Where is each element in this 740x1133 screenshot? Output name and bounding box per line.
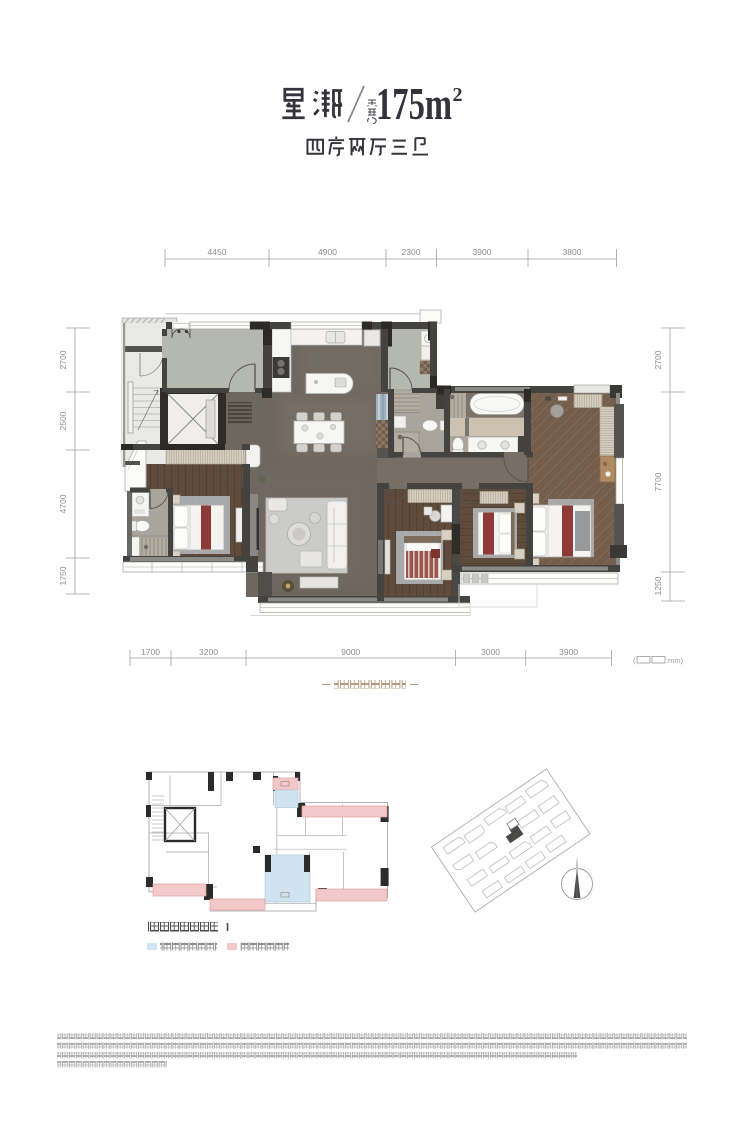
svg-text:1750: 1750 — [58, 566, 68, 585]
svg-text:2500: 2500 — [58, 411, 68, 430]
svg-text:3000: 3000 — [481, 647, 500, 657]
svg-text:2700: 2700 — [58, 350, 68, 369]
svg-text:3900: 3900 — [473, 247, 492, 257]
svg-text:9000: 9000 — [341, 647, 360, 657]
svg-text:4450: 4450 — [208, 247, 227, 257]
svg-text:1700: 1700 — [141, 647, 160, 657]
svg-text:2300: 2300 — [402, 247, 421, 257]
svg-text:7700: 7700 — [653, 472, 663, 491]
svg-text:175m: 175m — [376, 79, 452, 129]
svg-text:2: 2 — [453, 84, 463, 106]
svg-text:4700: 4700 — [58, 494, 68, 513]
svg-text:1250: 1250 — [653, 576, 663, 595]
svg-text::mm): :mm) — [666, 656, 684, 665]
svg-text:2700: 2700 — [653, 350, 663, 369]
svg-text:3900: 3900 — [559, 647, 578, 657]
svg-text:3200: 3200 — [199, 647, 218, 657]
svg-text:3800: 3800 — [563, 247, 582, 257]
svg-text:4900: 4900 — [318, 247, 337, 257]
